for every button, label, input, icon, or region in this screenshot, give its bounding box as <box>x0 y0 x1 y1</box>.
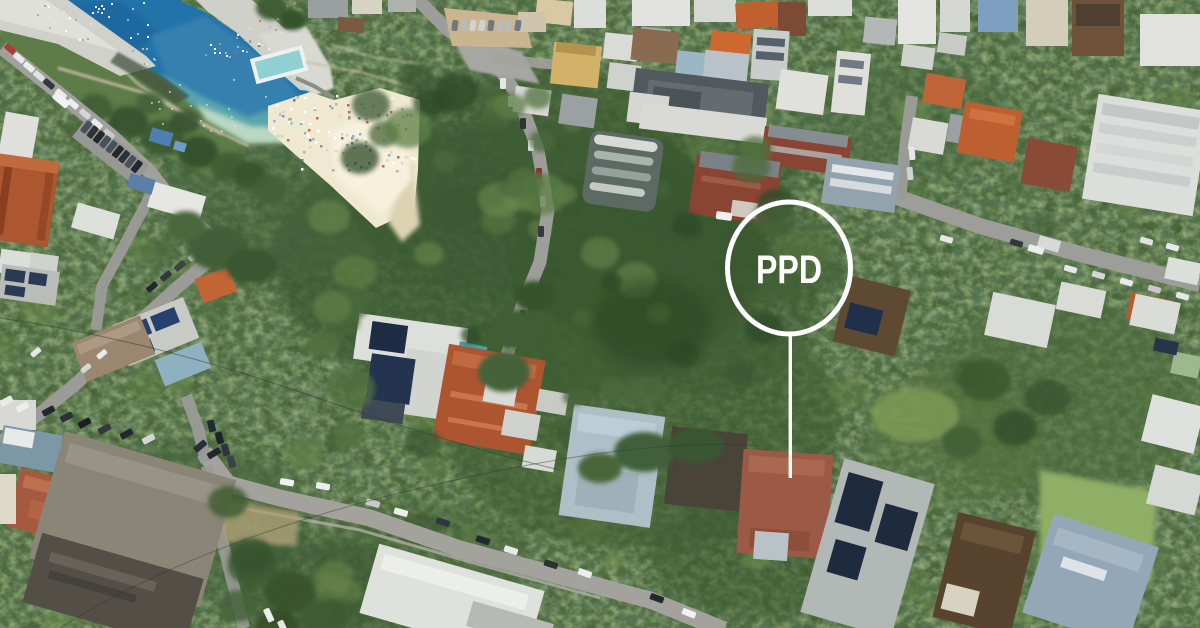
svg-text:PPD: PPD <box>756 248 822 292</box>
